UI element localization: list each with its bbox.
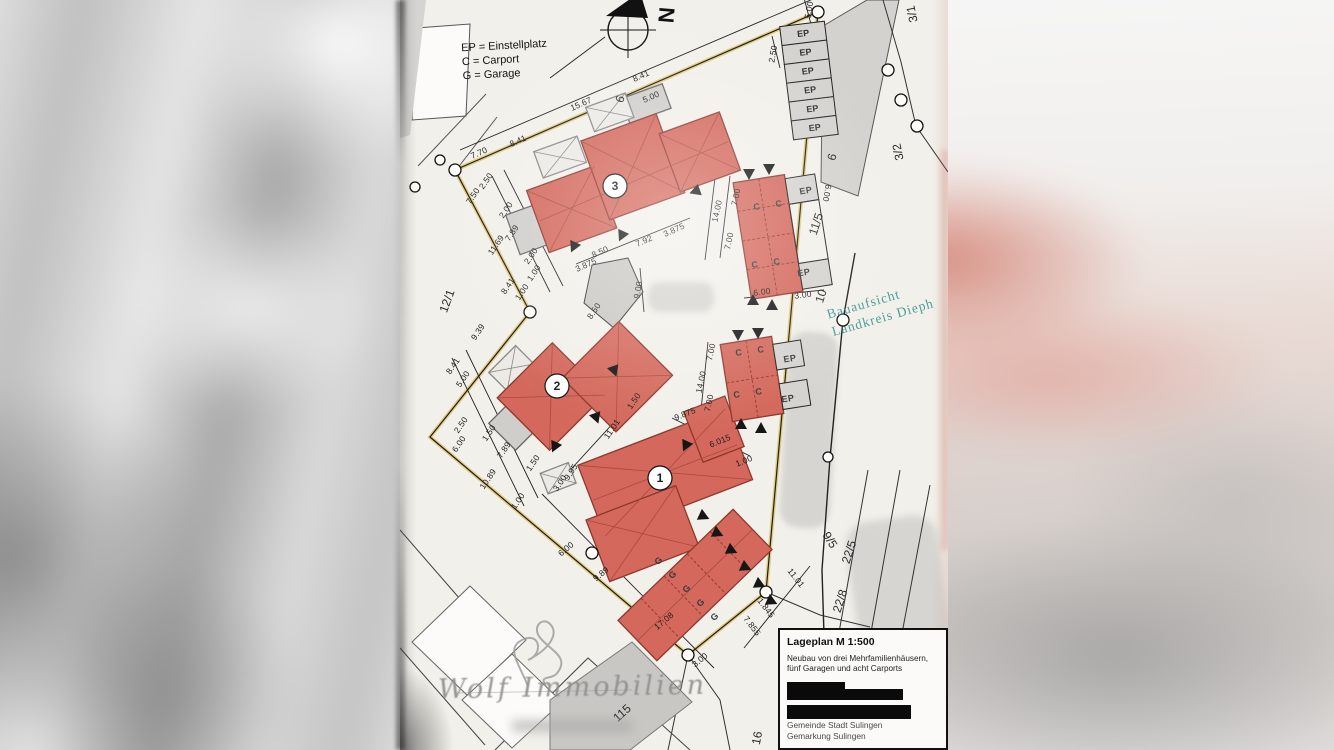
dimension-label: 1.00: [526, 263, 543, 282]
dimension-label: 7.00: [703, 394, 715, 413]
dimension-label: 1.50: [481, 423, 498, 442]
dimension-label: 8.41: [631, 69, 650, 84]
dimension-label: 2.00: [523, 246, 540, 265]
dimension-label: 14.00: [695, 370, 708, 394]
parcel-number-label: 16: [750, 730, 764, 745]
unit-type-label: G: [681, 583, 693, 595]
parcel-number-label: 12/1: [437, 288, 456, 314]
blurred-left-margin: [0, 0, 402, 750]
plan-description-line-1: Neubau von drei Mehrfamilienhäusern,: [787, 654, 939, 664]
title-block: Lageplan M 1:500 Neubau von drei Mehrfam…: [778, 628, 948, 750]
unit-type-label: C: [735, 348, 743, 358]
blurred-right-margin: [946, 0, 1334, 750]
unit-type-label: C: [775, 199, 783, 209]
dimension-label: 6.00: [451, 434, 468, 453]
dimension-label: 3.875: [662, 222, 686, 239]
dimension-label: 11.69: [486, 234, 505, 257]
watermark-smudge: [512, 720, 632, 732]
dimension-label: 3.875: [574, 257, 598, 274]
parcel-number-label: 6: [825, 152, 838, 162]
dimension-label: 8.41: [445, 356, 462, 375]
dimension-label: 7.89: [504, 223, 521, 242]
unit-type-label: C: [753, 202, 761, 212]
parcel-number-label: 10: [813, 288, 829, 304]
dimension-label: 6.00: [821, 184, 832, 203]
dimension-label: 5.00: [641, 90, 660, 105]
dimension-label: 1.00: [514, 282, 531, 301]
dimension-label: 14.00: [711, 199, 724, 223]
scan-edge-shadow: [396, 0, 405, 750]
dimension-label: 3.00: [794, 290, 812, 301]
dimension-label: 9.95: [563, 462, 580, 481]
dimension-label: 7.70: [469, 146, 488, 161]
scanned-site-plan-image: EP = Einstellplatz C = Carport G = Garag…: [0, 0, 1334, 750]
dimension-label: 7.855: [742, 615, 762, 638]
dimension-label: 2.50: [478, 171, 495, 190]
dimension-label: 1.00: [510, 491, 527, 510]
unit-type-label: G: [709, 611, 721, 623]
unit-type-label: C: [757, 345, 765, 355]
parcel-number-label: 9/5: [820, 530, 839, 551]
dimension-label: 1.50: [525, 453, 542, 472]
dimension-label: 2.50: [453, 415, 470, 434]
watermark-text: Wolf Immobilien: [438, 670, 708, 706]
dimension-label: 3.00: [691, 651, 710, 669]
dimension-label: 11.01: [786, 567, 806, 589]
dimension-label: 7.00: [730, 188, 742, 207]
dimension-label: 1.845: [756, 597, 776, 620]
dimension-label: 1.00: [734, 454, 753, 468]
redaction-bar: [787, 682, 845, 689]
dimension-label: 7.00: [705, 343, 717, 362]
parcel-number-label: 11/5: [807, 211, 825, 236]
unit-type-label: C: [733, 390, 741, 400]
dimension-label: 9.89: [592, 565, 611, 583]
unit-type-label: EP: [781, 394, 795, 405]
dimension-label: 7.89: [496, 440, 513, 459]
dimension-label: 9.875: [673, 406, 697, 422]
building-number-label: 3: [612, 180, 619, 192]
dimension-label: 5.00: [803, 1, 814, 20]
parcel-number-label: 22/5: [840, 539, 859, 565]
building-number-label: 2: [554, 380, 561, 392]
redaction-bar: [787, 705, 911, 719]
dimension-label: 6.015: [708, 433, 732, 449]
plan-title: Lageplan M 1:500: [787, 636, 939, 648]
municipality-line-1: Gemeinde Stadt Sulingen: [787, 720, 939, 731]
dimension-label: 6.00: [753, 287, 771, 298]
unit-type-label: EP: [783, 354, 797, 365]
dimension-label: 7.50: [465, 186, 482, 205]
dimension-label: 5.00: [455, 369, 472, 388]
municipality-line-2: Gemarkung Sulingen: [787, 731, 939, 742]
dimension-label: 9.39: [470, 322, 487, 341]
unit-type-label: EP: [799, 185, 813, 196]
unit-type-label: G: [695, 597, 707, 609]
dimension-label: 11.01: [602, 418, 621, 441]
unit-type-label: G: [653, 555, 665, 567]
site-plan: EP = Einstellplatz C = Carport G = Garag…: [400, 0, 948, 750]
parcel-number-label: 6: [613, 94, 627, 104]
unit-type-label: G: [667, 569, 679, 581]
dimension-label: 9.00: [632, 281, 643, 300]
dimension-label: 7.00: [723, 232, 735, 251]
dimension-label: 10.89: [478, 467, 498, 490]
dimension-label: 2.50: [767, 45, 778, 64]
dimension-label: 8.50: [586, 301, 603, 320]
redaction-bar: [787, 689, 903, 700]
unit-type-label: C: [751, 260, 759, 270]
unit-type-label: C: [773, 257, 781, 267]
dimension-label: 17.08: [653, 611, 676, 632]
dimension-label: 8.41: [508, 134, 527, 149]
dimension-label: 7.92: [634, 234, 653, 249]
plan-description-line-2: fünf Garagen und acht Carports: [787, 664, 939, 674]
dimension-label: 1.50: [626, 391, 643, 410]
unit-type-label: C: [755, 387, 763, 397]
building-number-label: 1: [657, 472, 664, 484]
unit-type-label: EP: [797, 267, 811, 278]
parcel-number-label: 3/1: [904, 5, 919, 24]
parcel-number-label: 22/8: [831, 588, 850, 614]
dimension-label: 2.00: [498, 200, 515, 219]
dimension-label: 6.00: [557, 540, 576, 558]
parcel-number-label: 3/2: [890, 143, 905, 162]
dimension-label: 15.67: [569, 96, 593, 113]
